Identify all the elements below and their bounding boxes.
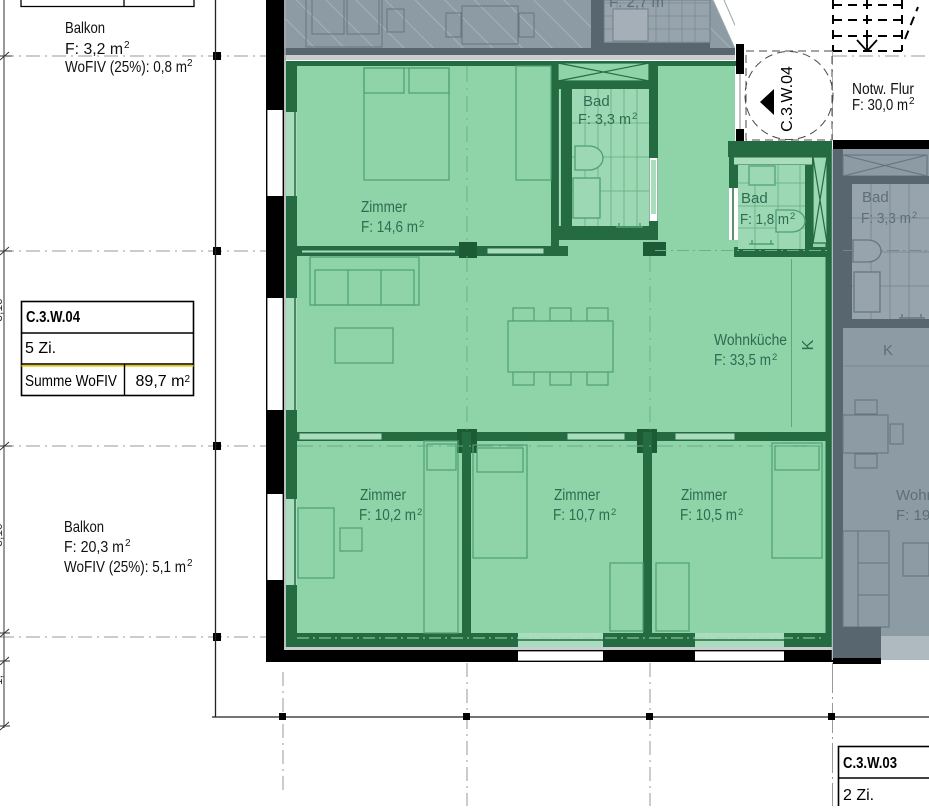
svg-text:5,10: 5,10 [0, 298, 5, 322]
svg-text:Bad: Bad [583, 93, 610, 110]
svg-text:F: 3,3 m: F: 3,3 m [861, 210, 911, 227]
svg-text:F: 3,2 m: F: 3,2 m [65, 41, 123, 58]
svg-text:Balkon: Balkon [65, 20, 105, 37]
svg-text:F: 1,8 m: F: 1,8 m [740, 211, 789, 228]
svg-text:K: K [800, 339, 817, 350]
svg-text:2: 2 [419, 219, 424, 230]
svg-text:1,: 1, [0, 675, 5, 685]
svg-text:2: 2 [912, 210, 917, 221]
svg-text:Wohnküche: Wohnküche [714, 332, 787, 349]
svg-text:K: K [883, 342, 893, 359]
svg-text:2: 2 [417, 507, 422, 518]
svg-text:C.3.W.03: C.3.W.03 [843, 755, 897, 772]
svg-text:C.3.W.04: C.3.W.04 [26, 309, 80, 326]
svg-text:2: 2 [124, 40, 130, 51]
svg-text:2: 2 [909, 96, 915, 107]
svg-text:F: 19: F: 19 [896, 507, 929, 524]
svg-text:F: 3,3 m: F: 3,3 m [578, 111, 631, 128]
svg-text:F: 20,3 m: F: 20,3 m [64, 539, 124, 556]
svg-text:Zimmer: Zimmer [554, 487, 600, 504]
svg-text:Bad: Bad [741, 190, 768, 207]
svg-text:F: 33,5 m: F: 33,5 m [714, 352, 771, 369]
svg-text:F: 10,5 m: F: 10,5 m [680, 507, 737, 524]
svg-text:Summe WoFIV: Summe WoFIV [25, 373, 117, 390]
svg-text:2: 2 [790, 211, 795, 222]
svg-text:F: 10,7 m: F: 10,7 m [553, 507, 610, 524]
svg-text:2: 2 [772, 352, 777, 363]
svg-text:2 Zi.: 2 Zi. [843, 787, 874, 804]
svg-text:2: 2 [187, 558, 193, 569]
svg-text:F: 30,0 m: F: 30,0 m [852, 97, 908, 114]
svg-text:5,10: 5,10 [0, 523, 5, 547]
svg-text:Wohn: Wohn [896, 487, 929, 504]
svg-text:F: 2,7 m: F: 2,7 m [609, 0, 664, 11]
svg-text:Zimmer: Zimmer [361, 199, 407, 216]
svg-text:Zimmer: Zimmer [360, 487, 406, 504]
svg-text:Notw. Flur: Notw. Flur [852, 81, 915, 98]
svg-text:C.3.W.04: C.3.W.04 [779, 66, 796, 132]
svg-text:Zimmer: Zimmer [681, 487, 727, 504]
svg-text:Balkon: Balkon [64, 519, 104, 536]
svg-text:2: 2 [632, 111, 637, 122]
svg-text:Bad: Bad [862, 189, 889, 206]
svg-text:2: 2 [187, 58, 193, 69]
svg-text:89,7 m2: 89,7 m2 [136, 373, 191, 390]
svg-text:WoFIV (25%): 5,1 m: WoFIV (25%): 5,1 m [64, 559, 186, 576]
svg-text:WoFIV (25%): 0,8 m: WoFIV (25%): 0,8 m [65, 59, 187, 76]
svg-text:2: 2 [125, 538, 131, 549]
svg-text:2: 2 [738, 507, 743, 518]
svg-text:2: 2 [611, 507, 616, 518]
svg-text:F: 10,2 m: F: 10,2 m [359, 507, 416, 524]
svg-text:F: 14,6 m: F: 14,6 m [361, 219, 418, 236]
svg-text:5 Zi.: 5 Zi. [25, 340, 56, 357]
